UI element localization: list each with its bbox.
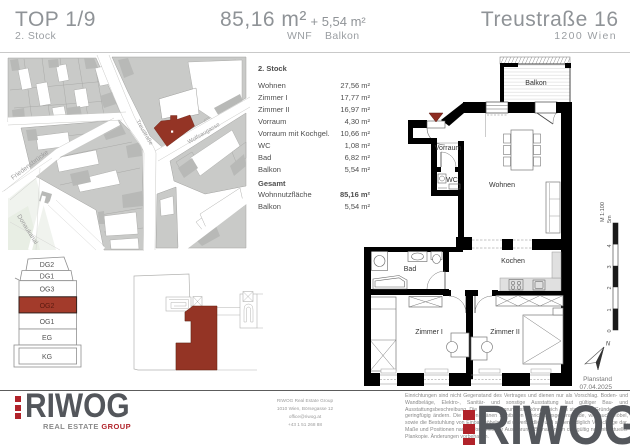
- svg-text:OG3: OG3: [40, 287, 55, 294]
- svg-text:OG1: OG1: [40, 319, 55, 326]
- svg-text:Kochen: Kochen: [501, 258, 525, 265]
- svg-text:Wohnen: Wohnen: [489, 182, 515, 189]
- svg-text:Balkon: Balkon: [525, 80, 547, 87]
- svg-text:KG: KG: [42, 354, 52, 361]
- svg-text:4: 4: [607, 244, 613, 247]
- svg-text:2: 2: [607, 286, 613, 289]
- svg-text:Bad: Bad: [404, 266, 417, 273]
- svg-text:M 1:100: M 1:100: [600, 202, 606, 222]
- svg-text:Vorraum: Vorraum: [435, 145, 462, 152]
- svg-text:EG: EG: [42, 335, 52, 342]
- svg-text:Planstand: Planstand: [583, 376, 612, 383]
- svg-text:3: 3: [607, 265, 613, 268]
- svg-text:WC: WC: [446, 177, 458, 184]
- svg-text:Zimmer II: Zimmer II: [490, 329, 520, 336]
- svg-text:N: N: [606, 341, 611, 348]
- svg-text:Zimmer I: Zimmer I: [415, 329, 443, 336]
- svg-text:DG2: DG2: [40, 262, 55, 269]
- svg-text:0: 0: [607, 329, 613, 332]
- svg-text:DG1: DG1: [40, 274, 55, 281]
- svg-text:OG2: OG2: [40, 303, 55, 310]
- svg-text:1: 1: [607, 308, 613, 311]
- svg-text:5m: 5m: [607, 215, 613, 223]
